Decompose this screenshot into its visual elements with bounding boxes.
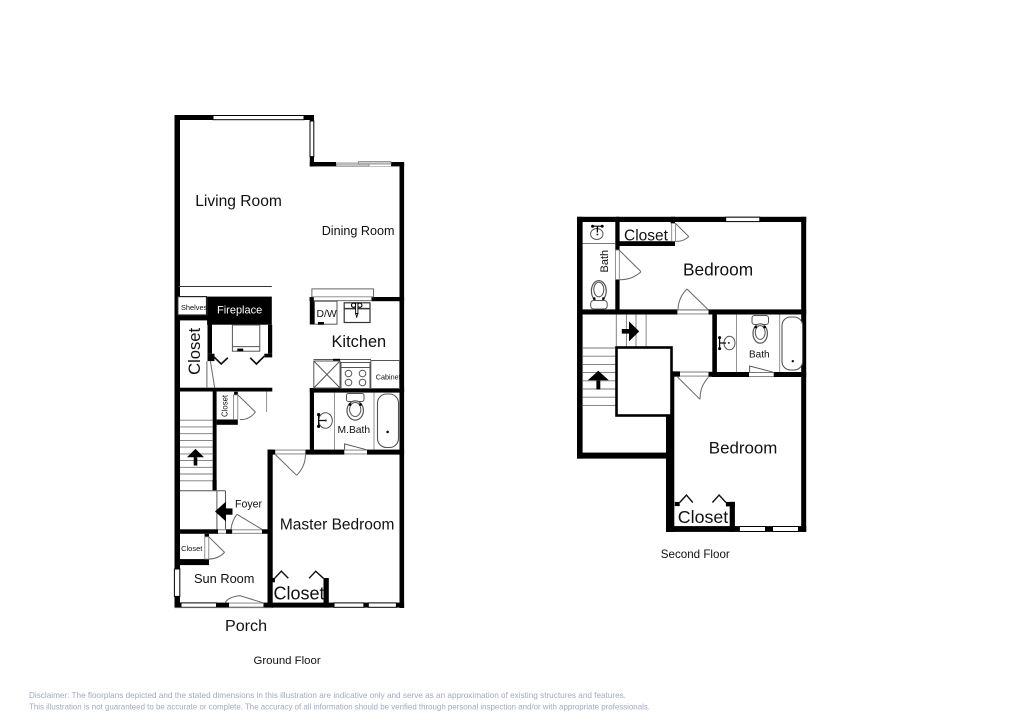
svg-text:Ground Floor: Ground Floor [254, 655, 321, 667]
svg-text:Closet: Closet [624, 227, 669, 244]
svg-text:Bath: Bath [749, 350, 770, 361]
svg-text:Closet: Closet [221, 394, 230, 417]
svg-text:Closet: Closet [181, 544, 203, 553]
svg-text:Sun Room: Sun Room [194, 571, 254, 586]
svg-text:Fireplace: Fireplace [217, 304, 262, 316]
svg-text:Kitchen: Kitchen [332, 333, 387, 351]
svg-text:This illustration is not guara: This illustration is not guaranteed to b… [29, 702, 650, 711]
svg-text:Shelves: Shelves [181, 303, 208, 312]
svg-text:Foyer: Foyer [235, 499, 263, 511]
svg-text:Closet: Closet [678, 507, 728, 527]
svg-text:Second Floor: Second Floor [661, 548, 730, 561]
svg-text:Closet: Closet [274, 584, 325, 604]
svg-text:Porch: Porch [225, 617, 267, 635]
svg-text:Bedroom: Bedroom [683, 260, 753, 280]
svg-text:M.Bath: M.Bath [338, 425, 371, 436]
svg-text:Closet: Closet [185, 327, 204, 374]
svg-text:Living Room: Living Room [195, 193, 282, 210]
svg-text:D/W: D/W [317, 309, 337, 320]
svg-text:Bath: Bath [599, 250, 611, 273]
svg-text:Cabinet: Cabinet [376, 373, 401, 382]
svg-text:Dining Room: Dining Room [322, 224, 395, 238]
svg-text:Master Bedroom: Master Bedroom [280, 517, 395, 534]
svg-text:Disclaimer: The floorplans dep: Disclaimer: The floorplans depicted and … [29, 691, 626, 700]
svg-text:Bedroom: Bedroom [709, 439, 778, 458]
